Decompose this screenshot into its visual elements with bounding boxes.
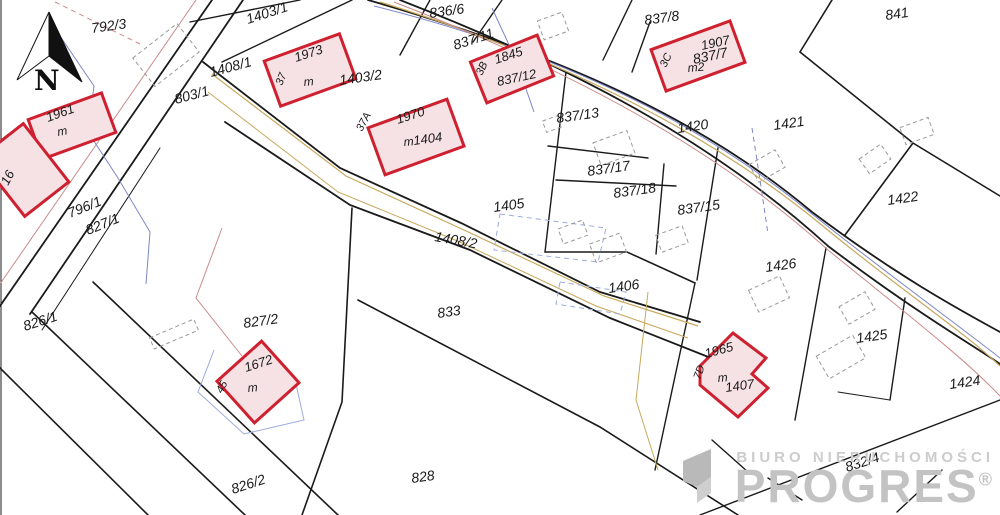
parcel-boundary-line xyxy=(0,368,148,515)
parcel-boundary-line xyxy=(768,478,802,500)
cadastral-map: 1961m16371973m37A1970m14043B1845837/123C… xyxy=(0,0,1000,515)
parcel-label: 1408/2 xyxy=(433,228,478,251)
parcel-label: 836/6 xyxy=(428,0,465,21)
unregistered-building-outline xyxy=(749,276,790,312)
parcel-boundary-line xyxy=(897,470,942,512)
unregistered-building-outline xyxy=(900,117,934,144)
unregistered-building-outline xyxy=(656,226,688,252)
unregistered-building-outline xyxy=(749,150,785,182)
parcel-boundary-line xyxy=(632,22,650,72)
parcel-label: 828 xyxy=(410,467,436,486)
parcel-label: 841 xyxy=(884,4,909,23)
parcel-label: 832/4 xyxy=(843,449,881,475)
building-label: m xyxy=(303,74,314,89)
north-label: N xyxy=(34,64,60,97)
parcel-label: 827/2 xyxy=(242,310,279,331)
parcel-label: 837/18 xyxy=(612,179,657,201)
parcel-label: 1403/1 xyxy=(244,0,290,27)
parcel-label: 792/3 xyxy=(90,15,127,36)
parcel-label: 837/8 xyxy=(643,7,680,28)
tan-utility-line xyxy=(636,292,658,470)
parcel-label: 826/1 xyxy=(21,308,59,334)
parcel-label: 1426 xyxy=(764,255,797,275)
parcel-label: 826/2 xyxy=(229,471,267,497)
unregistered-building-outline xyxy=(558,220,588,244)
parcel-boundary-line xyxy=(890,298,905,400)
parcel-label: 1422 xyxy=(886,188,919,208)
unregistered-building-outline xyxy=(859,144,891,174)
parcel-boundary-line xyxy=(32,312,245,515)
parcel-label: 837/17 xyxy=(586,157,632,179)
parcel-label: 1421 xyxy=(772,113,805,133)
unregistered-building-outline xyxy=(150,319,199,349)
parcel-label: 1424 xyxy=(948,372,981,392)
parcel-boundary-line xyxy=(800,52,1000,196)
pink-utility-line xyxy=(196,228,242,356)
parcel-boundary-line xyxy=(93,282,338,515)
parcel-label: 837/15 xyxy=(676,196,721,218)
blue-utility-line xyxy=(752,128,768,234)
lightblue-utility-line xyxy=(494,214,606,262)
parcel-boundary-line xyxy=(795,248,826,420)
parcel-boundary-line xyxy=(302,208,352,515)
unregistered-building-outline xyxy=(537,12,568,40)
parcel-boundary-line xyxy=(603,0,632,60)
parcel-boundary-line xyxy=(800,0,832,52)
parcel-boundary-line xyxy=(545,72,566,252)
unregistered-building-outline xyxy=(590,233,627,263)
parcel-label: 803/1 xyxy=(173,82,211,107)
parcel-boundary-line xyxy=(712,440,748,472)
parcel-boundary-line xyxy=(400,0,430,55)
parcel-label: 1406 xyxy=(607,276,640,296)
parcel-label: 1420 xyxy=(676,116,709,136)
building-label: m xyxy=(247,380,258,395)
parcel-label: 1425 xyxy=(855,326,888,346)
parcel-label: 1405 xyxy=(492,195,525,215)
cadastral-map-viewport[interactable]: 1961m16371973m37A1970m14043B1845837/123C… xyxy=(0,0,1000,515)
unregistered-building-outline xyxy=(839,292,875,324)
parcel-label: 1408/1 xyxy=(208,53,254,80)
parcel-label: 827/1 xyxy=(83,210,121,238)
parcel-label: 833 xyxy=(436,302,462,321)
parcel-boundary-line xyxy=(838,392,890,400)
